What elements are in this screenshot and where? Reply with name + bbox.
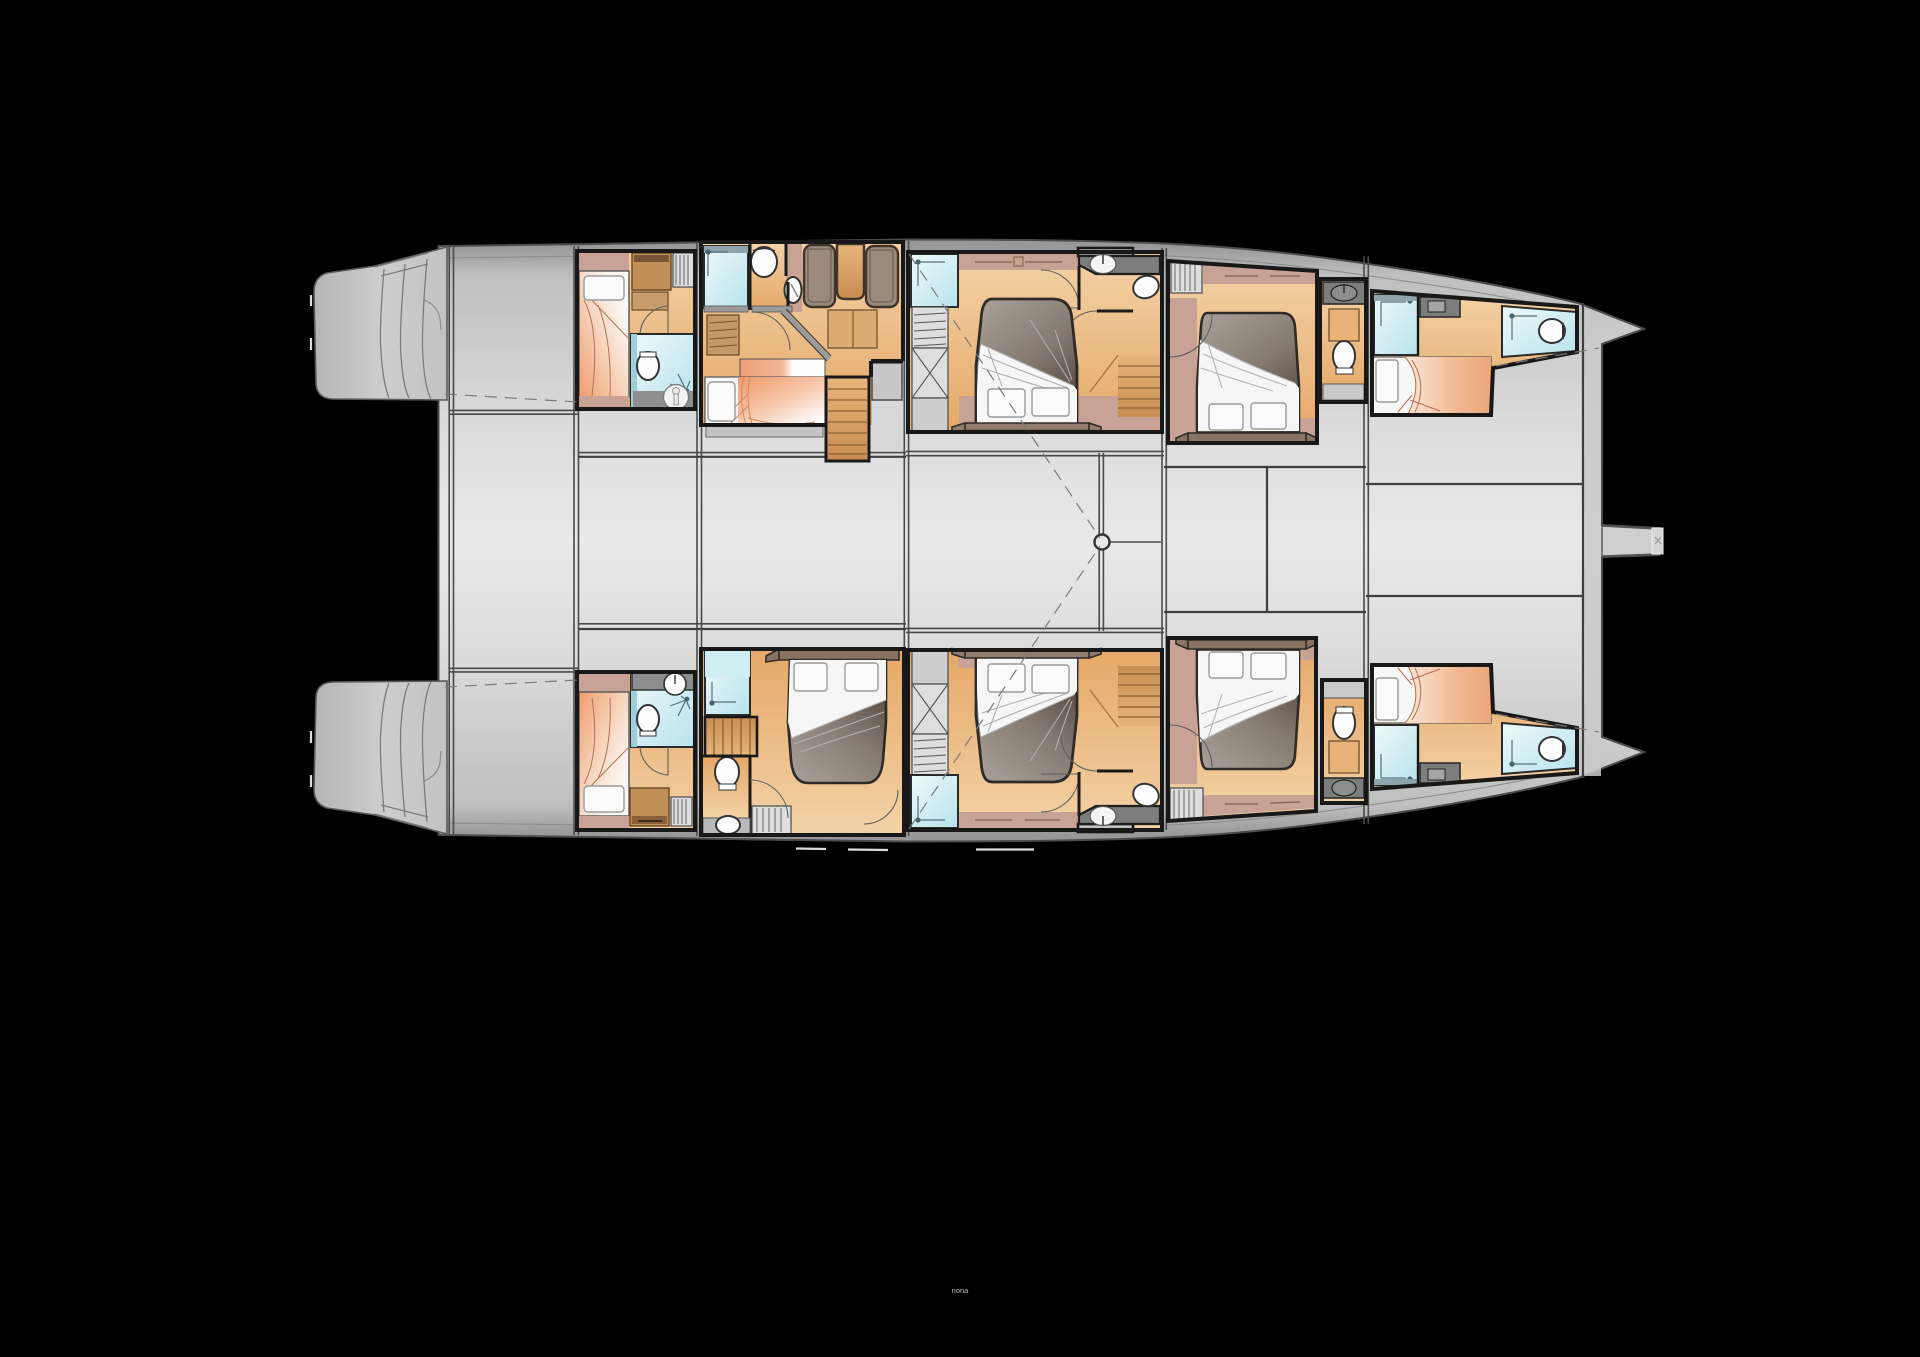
svg-text:nona: nona	[952, 1286, 970, 1295]
